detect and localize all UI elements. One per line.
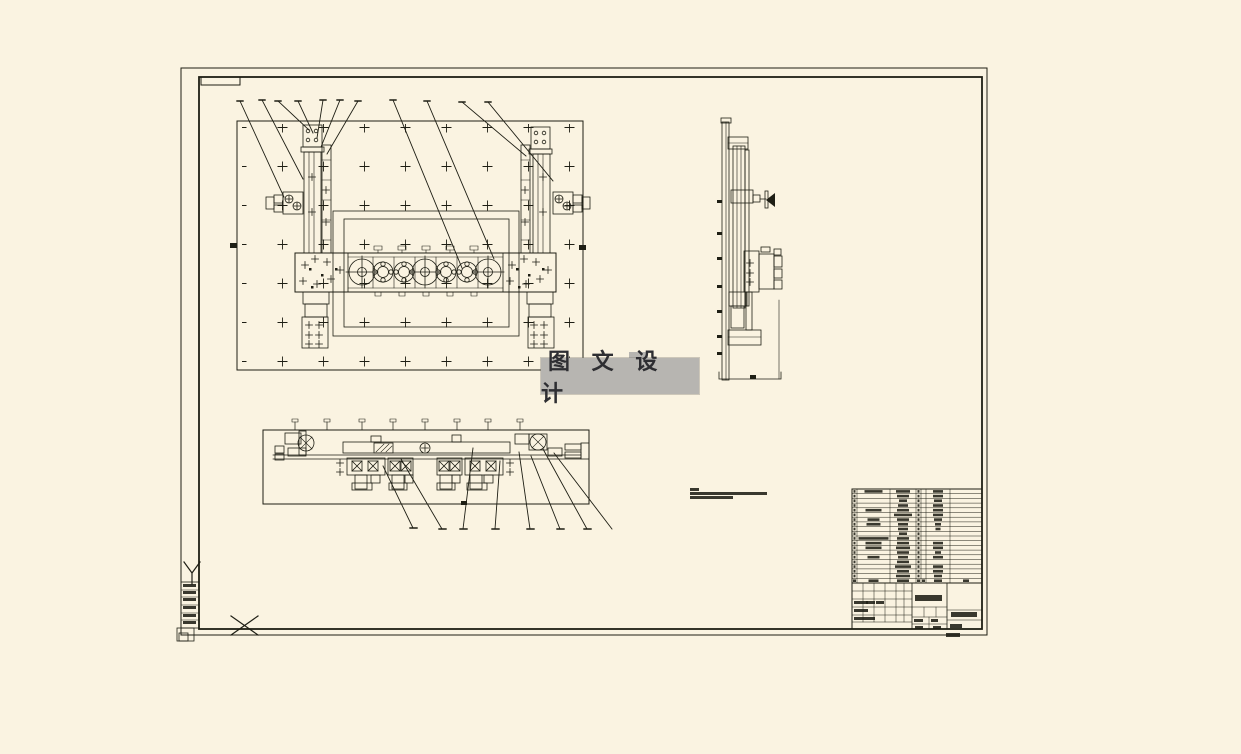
bom-cell-ink	[918, 561, 920, 564]
bom-cell-ink	[859, 537, 889, 540]
bom-cell-ink	[918, 551, 920, 554]
bom-cell-ink	[933, 514, 943, 517]
bom-cell-ink	[865, 490, 883, 493]
bom-cell-ink	[854, 575, 856, 578]
cam-block	[374, 443, 393, 453]
bom-cell-ink	[894, 514, 912, 517]
bom-cell-ink	[933, 570, 943, 573]
side-view	[717, 118, 782, 380]
bom-cell-ink	[933, 504, 943, 507]
bom-grid-lines	[852, 494, 982, 579]
bom-cell-ink	[918, 523, 920, 526]
bom-cell-ink	[854, 518, 856, 521]
bom-cell-ink	[963, 579, 969, 582]
company-text	[951, 612, 977, 617]
bom-cell-ink	[899, 532, 907, 535]
bom-cell-ink	[853, 579, 856, 582]
bom-cell-ink	[933, 509, 943, 512]
sheet-footer-text	[946, 633, 960, 637]
bom-cell-ink	[854, 509, 856, 512]
bom-cell-ink	[917, 579, 920, 582]
bom-cell-ink	[854, 504, 856, 507]
bom-cell-ink	[899, 499, 907, 502]
centering-mark-x	[231, 616, 258, 635]
bom-cell-ink	[854, 514, 856, 517]
bom-cell-ink	[918, 528, 920, 531]
leader-lines-front	[383, 448, 612, 529]
bom-cell-ink	[933, 495, 943, 498]
bom-cell-ink	[854, 565, 856, 568]
bom-cell-ink	[918, 490, 920, 493]
centering-mark-view	[579, 245, 586, 250]
bom-cell-ink	[933, 556, 943, 559]
bom-cell-ink	[854, 537, 856, 540]
bom-cell-ink	[854, 528, 856, 531]
bom-cell-ink	[933, 565, 943, 568]
bom-cell-ink	[918, 537, 920, 540]
bom-cell-ink	[854, 490, 856, 493]
bom-cell-ink	[918, 495, 920, 498]
bom-cell-ink	[918, 565, 920, 568]
bom-cell-ink	[897, 579, 909, 582]
bom-cell-ink	[918, 514, 920, 517]
bom-cell-ink	[934, 575, 942, 578]
bom-cell-ink	[854, 556, 856, 559]
bom-cell-ink	[936, 528, 941, 531]
bom-cell-ink	[866, 542, 882, 545]
bom-cell-ink	[897, 518, 909, 521]
centering-mark-y	[184, 562, 200, 584]
drawing-title-text	[915, 595, 942, 601]
front-view	[263, 419, 612, 529]
bom-cell-ink	[897, 570, 909, 573]
revision-strip	[181, 582, 199, 628]
bom-cell-ink	[918, 547, 920, 550]
bom-cell-ink	[922, 579, 925, 582]
side-motor	[744, 247, 782, 292]
bom-cell-ink	[934, 499, 942, 502]
bom-cell-ink	[898, 523, 908, 526]
bom-cell-ink	[867, 523, 881, 526]
clamp-brackets	[337, 458, 514, 476]
bom-cell-ink	[869, 579, 879, 582]
bom-cell-ink	[854, 499, 856, 502]
bom-cell-ink	[918, 518, 920, 521]
bom-cell-ink	[896, 547, 910, 550]
bom-cell-ink	[918, 499, 920, 502]
bom-cell-ink	[897, 537, 909, 540]
bom-cell-ink	[854, 561, 856, 564]
watermark: 图 文 设 计	[541, 358, 699, 394]
bom-cell-ink	[897, 542, 909, 545]
bom-cell-ink	[898, 556, 908, 559]
bom-cell-ink	[895, 565, 911, 568]
bom-cell-ink	[854, 542, 856, 545]
centering-mark-left	[230, 243, 237, 248]
bom-cell-ink	[866, 509, 882, 512]
bom-cell-ink	[918, 575, 920, 578]
bom-cell-ink	[897, 495, 909, 498]
bom-cell-ink	[933, 542, 943, 545]
bom-cell-ink	[896, 490, 910, 493]
technical-notes	[690, 488, 767, 499]
bom-cell-ink	[933, 490, 943, 493]
bom-cell-ink	[854, 551, 856, 554]
title-block	[852, 583, 982, 629]
bom-cell-ink	[897, 561, 909, 564]
bom-cell-ink	[898, 504, 908, 507]
bom-cell-ink	[918, 504, 920, 507]
bom-cell-ink	[897, 551, 909, 554]
bom-cell-ink	[934, 579, 942, 582]
bom-cell-ink	[854, 523, 856, 526]
bom-cell-ink	[898, 528, 908, 531]
side-lower-bracket	[728, 292, 779, 379]
bom-cell-ink	[897, 509, 909, 512]
bom-table	[852, 489, 982, 583]
centering-mark-view	[750, 375, 756, 379]
bom-cell-ink	[854, 570, 856, 573]
bolt-grid-marks	[242, 124, 578, 367]
cad-sheet: 图 文 设 计	[0, 0, 1241, 754]
bom-cell-ink	[918, 542, 920, 545]
handwheel-gearbox	[731, 190, 775, 208]
bom-cell-ink	[918, 556, 920, 559]
bom-cell-ink	[918, 570, 920, 573]
bom-cell-ink	[854, 532, 856, 535]
bom-cell-ink	[854, 547, 856, 550]
watermark-text: 图 文 设 计	[541, 344, 699, 408]
bom-cell-ink	[935, 523, 941, 526]
bom-cell-ink	[933, 547, 943, 550]
frame-tab	[201, 77, 240, 85]
bom-cell-ink	[896, 575, 910, 578]
bom-cell-ink	[868, 518, 880, 521]
top-view	[237, 100, 590, 370]
bom-cell-ink	[854, 495, 856, 498]
front-left-cluster	[275, 431, 314, 460]
bom-cell-ink	[868, 556, 880, 559]
bom-cell-ink	[934, 518, 942, 521]
feet	[352, 475, 493, 490]
bom-cell-ink	[918, 509, 920, 512]
bom-cell-ink	[918, 532, 920, 535]
bom-cell-ink	[935, 551, 941, 554]
bom-cell-ink	[866, 547, 882, 550]
